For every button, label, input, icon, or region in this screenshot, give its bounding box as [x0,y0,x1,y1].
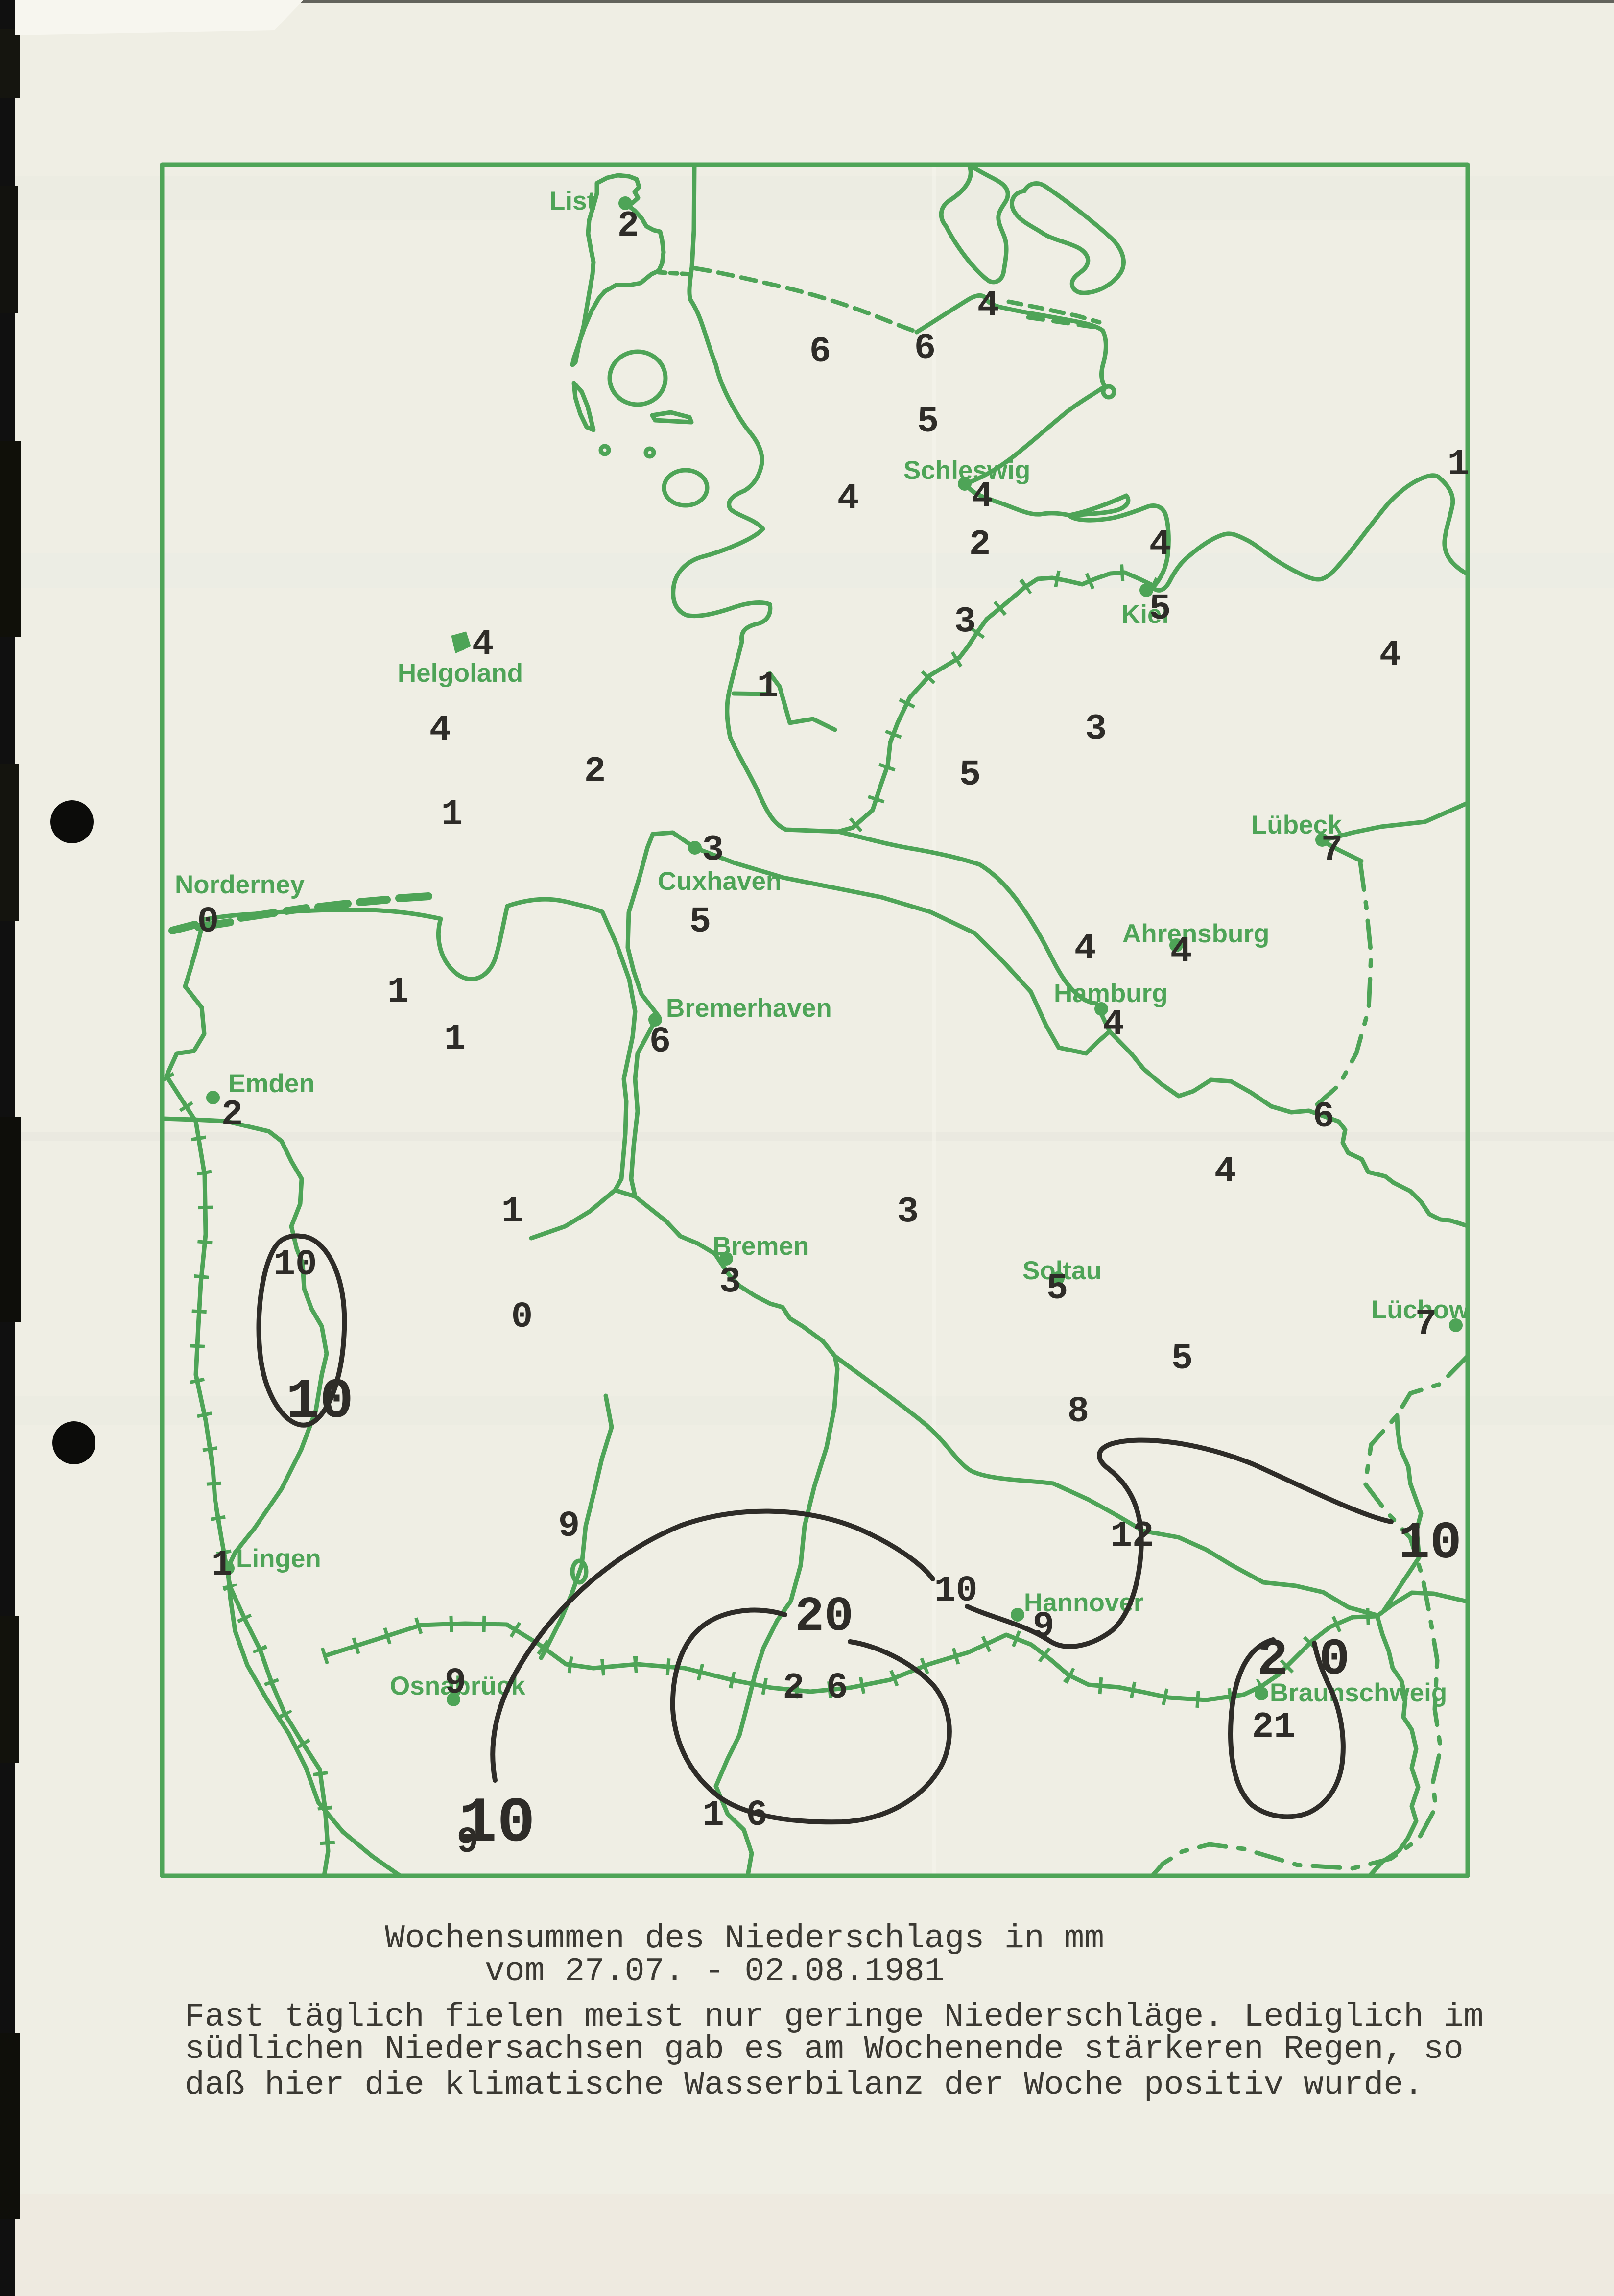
svg-text:Schleswig: Schleswig [903,456,1030,485]
svg-text:2 6: 2 6 [783,1668,848,1709]
svg-text:9: 9 [558,1506,580,1547]
svg-text:4: 4 [837,478,859,520]
svg-text:2: 2 [969,525,991,566]
svg-text:Bremerhaven: Bremerhaven [666,994,832,1023]
svg-text:5: 5 [1171,1339,1193,1380]
svg-text:Ahrensburg: Ahrensburg [1122,919,1269,948]
svg-text:3: 3 [897,1192,919,1233]
svg-text:6: 6 [1313,1097,1334,1138]
svg-text:7: 7 [1415,1304,1437,1345]
svg-text:Lingen: Lingen [236,1544,321,1573]
svg-text:10: 10 [934,1571,978,1612]
svg-text:10: 10 [1398,1514,1462,1574]
svg-text:12: 12 [1111,1516,1154,1557]
svg-text:2: 2 [617,206,639,247]
svg-text:daß hier die klimatische Wasse: daß hier die klimatische Wasserbilanz de… [185,2066,1424,2104]
svg-text:4: 4 [1214,1151,1236,1193]
svg-text:2: 2 [584,751,606,792]
svg-text:1: 1 [1448,444,1469,485]
svg-text:4: 4 [472,624,494,666]
svg-text:Helgoland: Helgoland [398,659,523,688]
svg-text:1: 1 [211,1545,233,1586]
svg-text:5: 5 [689,902,711,943]
svg-text:0: 0 [511,1297,533,1338]
svg-text:4: 4 [977,286,999,327]
svg-text:5: 5 [917,402,939,443]
svg-text:3: 3 [954,601,976,643]
svg-text:List: List [549,187,595,215]
svg-text:4: 4 [1103,1004,1124,1045]
svg-text:3: 3 [702,830,724,871]
svg-text:Norderney: Norderney [175,870,305,899]
svg-text:4: 4 [1074,929,1096,970]
svg-text:Cuxhaven: Cuxhaven [658,867,782,896]
svg-text:6: 6 [809,332,831,373]
svg-text:4: 4 [429,710,451,751]
svg-text:5: 5 [1046,1268,1068,1310]
svg-text:2: 2 [221,1095,243,1136]
svg-text:5: 5 [1149,589,1171,630]
svg-text:Bremen: Bremen [712,1232,809,1261]
svg-text:4: 4 [1149,525,1171,566]
svg-text:9: 9 [445,1663,466,1704]
svg-text:1: 1 [441,794,463,836]
svg-text:1: 1 [444,1019,466,1060]
svg-text:1: 1 [387,972,409,1013]
svg-text:4: 4 [1170,932,1192,973]
svg-text:6: 6 [914,328,936,369]
svg-text:8: 8 [1068,1391,1089,1433]
svg-text:21: 21 [1252,1707,1296,1748]
svg-text:Emden: Emden [228,1069,315,1098]
svg-text:10: 10 [459,1788,535,1860]
svg-text:9: 9 [1033,1606,1054,1648]
svg-text:3: 3 [1085,709,1107,750]
svg-text:1: 1 [757,667,779,708]
svg-text:3: 3 [719,1262,741,1303]
svg-text:10: 10 [286,1370,354,1434]
svg-text:1 6: 1 6 [702,1795,767,1836]
svg-text:Wochensummen des Niederschlags: Wochensummen des Niederschlags in mm [385,1920,1104,1958]
svg-text:7: 7 [1321,830,1343,871]
svg-text:4: 4 [972,477,993,518]
svg-text:10: 10 [274,1244,317,1286]
svg-text:0: 0 [197,902,219,943]
svg-text:5: 5 [959,755,981,796]
svg-text:6: 6 [649,1022,671,1063]
svg-text:vom 27.07. - 02.08.1981: vom 27.07. - 02.08.1981 [485,1953,945,1990]
svg-text:1: 1 [501,1192,523,1233]
svg-text:2 0: 2 0 [1257,1631,1350,1689]
svg-text:20: 20 [795,1590,854,1645]
svg-text:südlichen Niedersachsen gab es: südlichen Niedersachsen gab es am Wochen… [185,2031,1464,2068]
svg-text:4: 4 [1379,635,1401,676]
